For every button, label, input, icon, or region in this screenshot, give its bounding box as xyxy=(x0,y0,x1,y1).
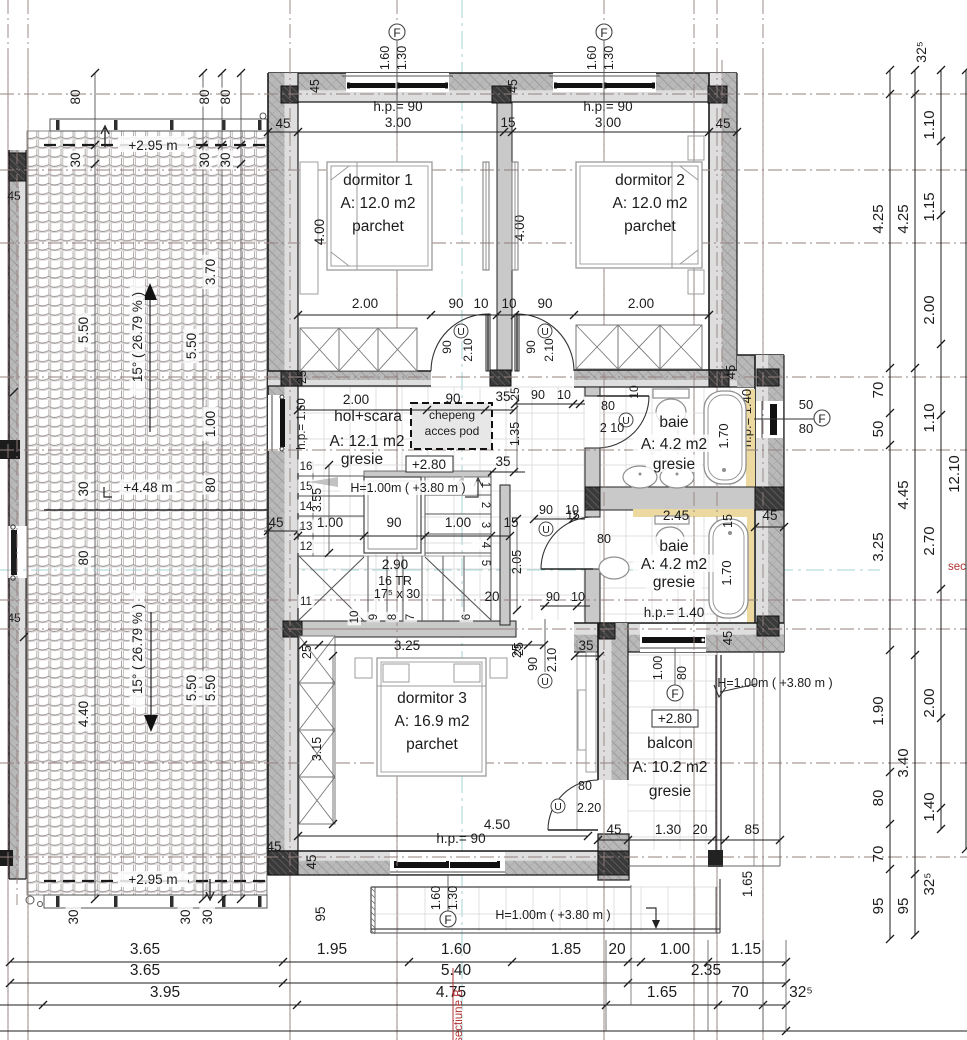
svg-text:dormitor 1: dormitor 1 xyxy=(343,172,413,189)
svg-text:A: 12.0 m2: A: 12.0 m2 xyxy=(613,195,688,212)
svg-text:acces pod: acces pod xyxy=(425,424,480,438)
svg-text:45: 45 xyxy=(506,79,520,93)
svg-text:1.60: 1.60 xyxy=(429,886,443,910)
svg-text:4.25: 4.25 xyxy=(895,204,912,233)
svg-text:h.p.= 90: h.p.= 90 xyxy=(436,831,485,846)
svg-text:90: 90 xyxy=(440,340,454,354)
svg-text:1.30: 1.30 xyxy=(446,886,460,910)
svg-text:25: 25 xyxy=(300,645,314,659)
svg-text:baie: baie xyxy=(659,414,688,431)
svg-text:gresie: gresie xyxy=(649,783,691,800)
svg-text:A: 12.0 m2: A: 12.0 m2 xyxy=(341,195,416,212)
svg-text:13: 13 xyxy=(300,521,313,533)
svg-text:1.00: 1.00 xyxy=(203,411,218,437)
svg-text:3.65: 3.65 xyxy=(130,941,160,958)
svg-text:gresie: gresie xyxy=(653,456,695,473)
svg-text:10: 10 xyxy=(557,388,571,402)
svg-text:A: 4.2 m2: A: 4.2 m2 xyxy=(641,436,707,453)
svg-text:1.35: 1.35 xyxy=(508,422,522,446)
svg-text:90: 90 xyxy=(526,657,540,671)
svg-text:3.00: 3.00 xyxy=(595,115,621,130)
svg-text:80: 80 xyxy=(597,532,611,546)
svg-text:A: 12.1 m2: A: 12.1 m2 xyxy=(330,433,405,450)
svg-text:32⁵: 32⁵ xyxy=(921,873,938,896)
svg-text:U: U xyxy=(457,326,465,338)
svg-text:parchet: parchet xyxy=(406,736,458,753)
svg-text:H=1.00m ( +3.80 m ): H=1.00m ( +3.80 m ) xyxy=(717,676,832,690)
svg-text:2: 2 xyxy=(479,502,491,508)
svg-text:5.40: 5.40 xyxy=(441,962,472,979)
svg-text:35: 35 xyxy=(495,454,510,469)
svg-text:10: 10 xyxy=(473,296,488,311)
svg-text:90: 90 xyxy=(537,296,552,311)
svg-text:80: 80 xyxy=(68,89,83,104)
svg-text:2.00: 2.00 xyxy=(921,295,938,324)
svg-text:5.50: 5.50 xyxy=(203,675,218,701)
svg-text:1.70: 1.70 xyxy=(716,423,731,448)
svg-text:45: 45 xyxy=(7,189,21,203)
svg-text:A: 10.2 m2: A: 10.2 m2 xyxy=(633,759,708,776)
svg-text:4.50: 4.50 xyxy=(484,817,510,832)
svg-text:U: U xyxy=(542,524,550,536)
svg-text:35: 35 xyxy=(578,638,593,653)
svg-text:sec: sec xyxy=(948,561,966,573)
svg-text:8: 8 xyxy=(387,614,399,620)
svg-text:80: 80 xyxy=(76,550,91,565)
svg-text:parchet: parchet xyxy=(352,218,404,235)
svg-text:50: 50 xyxy=(799,397,813,412)
svg-text:gresie: gresie xyxy=(341,451,383,468)
svg-text:4.00: 4.00 xyxy=(312,219,327,245)
svg-text:5.50: 5.50 xyxy=(184,675,199,701)
svg-text:12: 12 xyxy=(300,541,313,553)
svg-text:+2.95 m: +2.95 m xyxy=(128,138,177,153)
svg-text:10: 10 xyxy=(565,503,579,517)
svg-text:45: 45 xyxy=(308,79,322,93)
svg-text:45: 45 xyxy=(715,116,730,131)
svg-text:80: 80 xyxy=(203,477,218,492)
svg-text:1.30: 1.30 xyxy=(395,46,409,70)
svg-text:90: 90 xyxy=(386,515,401,530)
svg-text:30: 30 xyxy=(197,152,212,167)
svg-text:dormitor 3: dormitor 3 xyxy=(397,690,467,707)
svg-text:80: 80 xyxy=(675,666,689,680)
svg-text:45: 45 xyxy=(720,631,735,645)
svg-text:1.00: 1.00 xyxy=(317,515,343,530)
svg-text:70: 70 xyxy=(870,382,887,399)
svg-text:F: F xyxy=(393,26,400,40)
svg-text:2.70: 2.70 xyxy=(921,526,938,555)
svg-text:gresie: gresie xyxy=(653,574,695,591)
svg-text:80: 80 xyxy=(197,89,212,104)
svg-text:h.p.= 90: h.p.= 90 xyxy=(583,99,632,114)
svg-text:70: 70 xyxy=(870,846,887,863)
svg-text:3.55: 3.55 xyxy=(310,488,324,512)
svg-text:1.15: 1.15 xyxy=(921,192,938,221)
svg-text:30: 30 xyxy=(66,909,81,924)
svg-text:80: 80 xyxy=(870,790,887,807)
svg-text:10: 10 xyxy=(627,385,641,399)
svg-text:balcon: balcon xyxy=(647,735,693,752)
svg-text:3.40: 3.40 xyxy=(895,748,912,777)
svg-text:45: 45 xyxy=(275,116,290,131)
svg-text:90: 90 xyxy=(524,340,538,354)
svg-text:F: F xyxy=(818,412,825,426)
svg-text:80: 80 xyxy=(799,421,813,436)
svg-text:1.90: 1.90 xyxy=(870,696,887,725)
svg-text:2.45: 2.45 xyxy=(663,508,689,523)
svg-text:30: 30 xyxy=(178,909,193,924)
svg-text:F: F xyxy=(444,913,451,927)
svg-text:3.15: 3.15 xyxy=(310,737,324,761)
svg-text:+2.95 m: +2.95 m xyxy=(128,872,177,887)
svg-text:2.20: 2.20 xyxy=(577,801,601,815)
svg-text:4.40: 4.40 xyxy=(76,701,91,727)
svg-text:1.00: 1.00 xyxy=(445,515,471,530)
svg-text:25: 25 xyxy=(295,370,309,384)
svg-text:30: 30 xyxy=(218,152,233,167)
svg-text:1.00: 1.00 xyxy=(660,941,691,958)
svg-text:h.p.= 90: h.p.= 90 xyxy=(373,99,422,114)
svg-text:1.60: 1.60 xyxy=(378,46,392,70)
svg-text:5.50: 5.50 xyxy=(76,317,91,343)
svg-text:7: 7 xyxy=(405,614,417,620)
svg-text:1.60: 1.60 xyxy=(585,46,599,70)
svg-text:1.85: 1.85 xyxy=(551,941,581,958)
svg-text:+2.80: +2.80 xyxy=(412,457,446,472)
svg-text:90: 90 xyxy=(445,391,460,406)
svg-text:U: U xyxy=(541,326,549,338)
svg-text:17⁵ x 30: 17⁵ x 30 xyxy=(374,587,420,601)
svg-text:32⁵: 32⁵ xyxy=(913,41,929,62)
svg-text:A: 16.9 m2: A: 16.9 m2 xyxy=(395,713,470,730)
svg-text:H=1.00m ( +3.80 m ): H=1.00m ( +3.80 m ) xyxy=(495,908,610,922)
svg-text:45: 45 xyxy=(268,515,283,530)
svg-text:3.65: 3.65 xyxy=(130,962,160,979)
svg-text:3.25: 3.25 xyxy=(870,532,887,561)
svg-text:90: 90 xyxy=(531,388,545,402)
svg-text:95: 95 xyxy=(313,906,328,921)
svg-text:11: 11 xyxy=(300,596,312,608)
svg-text:1.40: 1.40 xyxy=(921,792,938,821)
svg-text:6: 6 xyxy=(461,614,473,620)
svg-text:80: 80 xyxy=(601,399,615,413)
svg-text:45: 45 xyxy=(266,839,281,854)
svg-text:80: 80 xyxy=(578,779,592,793)
svg-text:5.50: 5.50 xyxy=(184,333,199,359)
svg-text:H=1.00m ( +3.80 m ): H=1.00m ( +3.80 m ) xyxy=(350,481,465,495)
svg-text:10: 10 xyxy=(501,296,516,311)
svg-text:1.30: 1.30 xyxy=(655,822,681,837)
svg-text:80: 80 xyxy=(218,89,233,104)
svg-text:2.00: 2.00 xyxy=(921,688,938,717)
svg-text:1.00: 1.00 xyxy=(651,656,665,680)
svg-text:10: 10 xyxy=(349,611,361,624)
svg-text:3.00: 3.00 xyxy=(385,115,411,130)
svg-text:dormitor 2: dormitor 2 xyxy=(615,172,685,189)
svg-text:25: 25 xyxy=(510,644,524,658)
svg-text:2.90: 2.90 xyxy=(382,557,408,572)
svg-text:2.10: 2.10 xyxy=(542,338,556,362)
svg-text:4.45: 4.45 xyxy=(895,480,912,509)
svg-text:2 10: 2 10 xyxy=(600,421,624,435)
svg-text:+2.80: +2.80 xyxy=(658,711,692,726)
svg-text:10: 10 xyxy=(571,590,585,604)
svg-text:70: 70 xyxy=(731,984,749,1001)
svg-text:F: F xyxy=(671,687,678,701)
svg-text:20: 20 xyxy=(484,589,499,604)
svg-text:90: 90 xyxy=(546,590,560,604)
svg-text:1.10: 1.10 xyxy=(921,403,938,432)
svg-text:1.65: 1.65 xyxy=(647,984,677,1001)
svg-text:2.00: 2.00 xyxy=(343,392,369,407)
svg-text:45: 45 xyxy=(762,508,777,523)
svg-text:20: 20 xyxy=(608,941,626,958)
svg-text:9: 9 xyxy=(368,614,380,620)
svg-text:15: 15 xyxy=(500,115,515,130)
svg-text:baie: baie xyxy=(659,538,688,555)
svg-text:4: 4 xyxy=(479,542,491,549)
svg-text:15° ( 26.79 % ): 15° ( 26.79 % ) xyxy=(130,604,145,694)
svg-text:4.25: 4.25 xyxy=(870,204,887,233)
svg-text:2.00: 2.00 xyxy=(352,296,378,311)
svg-text:30: 30 xyxy=(68,152,83,167)
svg-text:3: 3 xyxy=(479,522,491,528)
svg-text:2.10: 2.10 xyxy=(461,338,475,362)
svg-text:45: 45 xyxy=(304,854,319,869)
svg-text:h.p.= 1.60: h.p.= 1.60 xyxy=(296,398,308,449)
svg-text:50: 50 xyxy=(870,421,887,438)
svg-text:A: 4.2 m2: A: 4.2 m2 xyxy=(641,556,707,573)
svg-text:45: 45 xyxy=(723,365,738,379)
svg-text:15° ( 26.79 % ): 15° ( 26.79 % ) xyxy=(130,292,145,382)
svg-text:U: U xyxy=(554,801,562,813)
svg-text:parchet: parchet xyxy=(624,218,676,235)
svg-text:3.95: 3.95 xyxy=(150,984,180,1001)
svg-text:sectiune B: sectiune B xyxy=(453,989,465,1040)
svg-text:12.10: 12.10 xyxy=(946,455,963,493)
svg-text:hol+scara: hol+scara xyxy=(334,408,402,425)
svg-text:1.10: 1.10 xyxy=(921,110,938,139)
svg-text:95: 95 xyxy=(895,898,912,915)
svg-text:16: 16 xyxy=(300,461,313,473)
svg-text:F: F xyxy=(600,26,607,40)
svg-text:1.95: 1.95 xyxy=(317,941,347,958)
svg-text:85: 85 xyxy=(744,822,759,837)
svg-text:20: 20 xyxy=(692,822,707,837)
svg-text:1.65: 1.65 xyxy=(740,871,755,897)
svg-text:5: 5 xyxy=(479,560,491,566)
svg-text:32⁵: 32⁵ xyxy=(789,984,813,1001)
svg-text:95: 95 xyxy=(870,898,887,915)
svg-text:1.30: 1.30 xyxy=(602,46,616,70)
svg-text:U: U xyxy=(541,676,549,688)
svg-text:30: 30 xyxy=(76,481,91,496)
svg-text:+4.48 m: +4.48 m xyxy=(123,480,172,495)
svg-text:1.15: 1.15 xyxy=(731,941,761,958)
svg-text:15: 15 xyxy=(503,515,518,530)
svg-text:30: 30 xyxy=(200,909,215,924)
svg-text:1.60: 1.60 xyxy=(441,941,472,958)
svg-text:35: 35 xyxy=(495,389,510,404)
svg-text:16 TR: 16 TR xyxy=(378,574,412,588)
svg-text:45: 45 xyxy=(7,611,21,625)
svg-text:3.25: 3.25 xyxy=(394,638,420,653)
svg-text:45: 45 xyxy=(606,822,621,837)
svg-text:2.00: 2.00 xyxy=(628,296,654,311)
svg-text:4.00: 4.00 xyxy=(512,215,527,241)
svg-text:2.10: 2.10 xyxy=(545,648,559,672)
svg-text:3.70: 3.70 xyxy=(203,259,218,285)
svg-text:2.35: 2.35 xyxy=(691,962,721,979)
svg-text:h.p.= 1.40: h.p.= 1.40 xyxy=(644,605,704,620)
svg-text:90: 90 xyxy=(539,503,553,517)
svg-text:90: 90 xyxy=(448,296,463,311)
svg-text:1.70: 1.70 xyxy=(719,560,734,585)
svg-text:15: 15 xyxy=(721,514,735,528)
